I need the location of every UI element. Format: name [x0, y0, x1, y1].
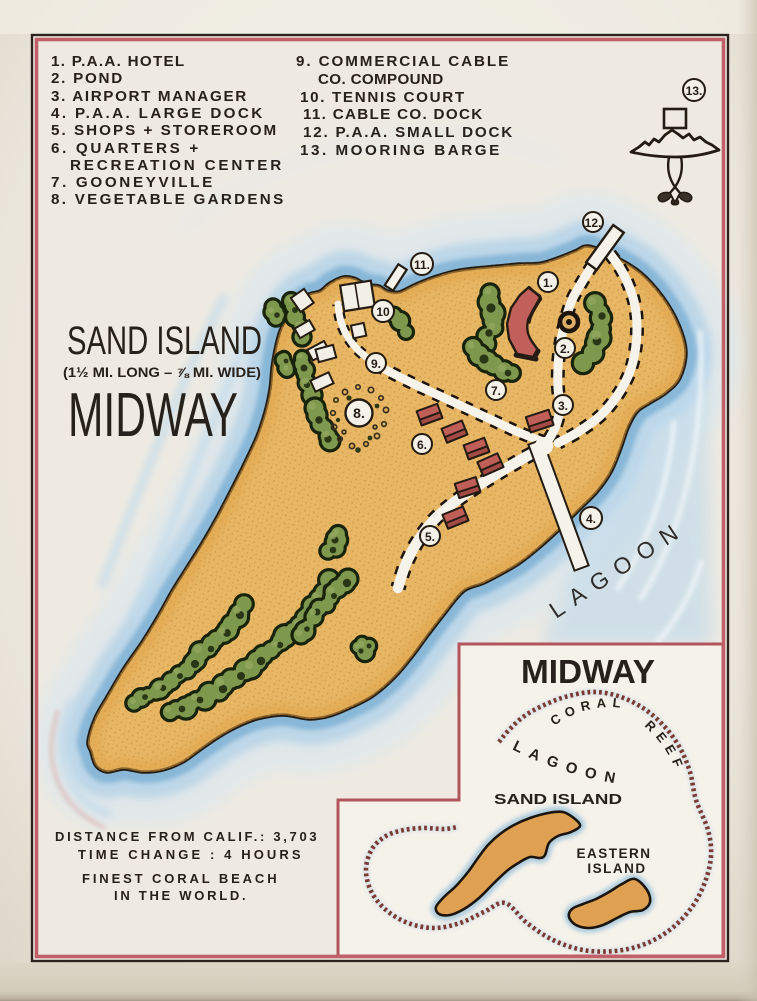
- svg-text:RECREATION CENTER: RECREATION CENTER: [70, 157, 282, 174]
- svg-text:FINEST CORAL BEACH: FINEST CORAL BEACH: [82, 871, 277, 886]
- svg-text:12. P.A.A. SMALL DOCK: 12. P.A.A. SMALL DOCK: [303, 124, 513, 141]
- svg-text:4. P.A.A. LARGE DOCK: 4. P.A.A. LARGE DOCK: [51, 105, 263, 122]
- svg-text:3.: 3.: [558, 399, 568, 413]
- svg-text:DISTANCE FROM CALIF.: 3,703: DISTANCE FROM CALIF.: 3,703: [55, 829, 317, 844]
- svg-text:4.: 4.: [586, 512, 596, 526]
- svg-text:2.: 2.: [560, 342, 570, 356]
- svg-text:MIDWAY: MIDWAY: [521, 653, 655, 690]
- svg-text:8.: 8.: [353, 405, 365, 421]
- svg-text:10: 10: [376, 305, 390, 319]
- svg-text:SAND ISLAND: SAND ISLAND: [67, 319, 262, 363]
- svg-text:2. POND: 2. POND: [51, 70, 123, 87]
- svg-text:13.: 13.: [686, 84, 703, 98]
- svg-text:9.: 9.: [371, 357, 381, 371]
- svg-text:5.: 5.: [425, 530, 435, 544]
- svg-text:EASTERN: EASTERN: [576, 846, 651, 861]
- svg-text:5. SHOPS + STOREROOM: 5. SHOPS + STOREROOM: [51, 122, 277, 139]
- svg-text:IN THE WORLD.: IN THE WORLD.: [114, 888, 246, 903]
- svg-text:6. QUARTERS +: 6. QUARTERS +: [51, 140, 199, 157]
- svg-text:13. MOORING BARGE: 13. MOORING BARGE: [300, 142, 500, 159]
- svg-text:MIDWAY: MIDWAY: [68, 381, 238, 450]
- svg-text:6.: 6.: [417, 438, 427, 452]
- svg-text:1.: 1.: [543, 276, 553, 290]
- svg-text:ISLAND: ISLAND: [587, 861, 646, 876]
- svg-text:(1½ MI. LONG – ⅞ MI. WIDE): (1½ MI. LONG – ⅞ MI. WIDE): [63, 365, 261, 380]
- svg-text:3. AIRPORT MANAGER: 3. AIRPORT MANAGER: [51, 88, 247, 105]
- svg-text:9. COMMERCIAL CABLE: 9. COMMERCIAL CABLE: [296, 53, 509, 70]
- svg-text:1. P.A.A. HOTEL: 1. P.A.A. HOTEL: [51, 53, 185, 70]
- svg-text:CO. COMPOUND: CO. COMPOUND: [318, 71, 444, 88]
- svg-text:11. CABLE CO. DOCK: 11. CABLE CO. DOCK: [303, 106, 483, 123]
- svg-text:10. TENNIS COURT: 10. TENNIS COURT: [300, 89, 465, 106]
- svg-text:SAND ISLAND: SAND ISLAND: [494, 791, 622, 808]
- svg-text:11.: 11.: [414, 258, 430, 272]
- svg-text:7.: 7.: [491, 384, 501, 398]
- svg-text:12.: 12.: [585, 216, 602, 230]
